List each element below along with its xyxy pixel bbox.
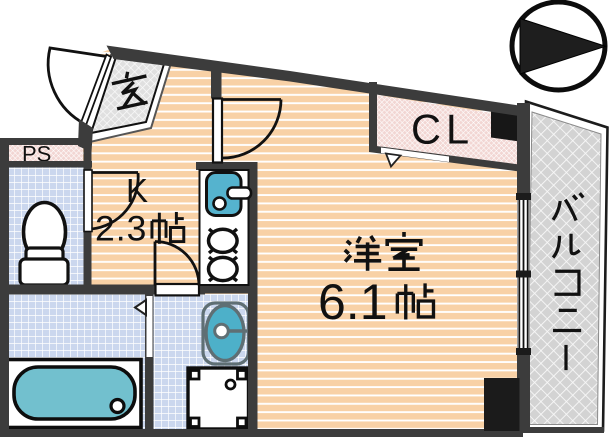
svg-text:K: K: [126, 172, 148, 209]
svg-text:2.3: 2.3: [95, 209, 147, 249]
svg-text:6.1: 6.1: [318, 274, 388, 330]
svg-text:CL: CL: [411, 106, 474, 153]
